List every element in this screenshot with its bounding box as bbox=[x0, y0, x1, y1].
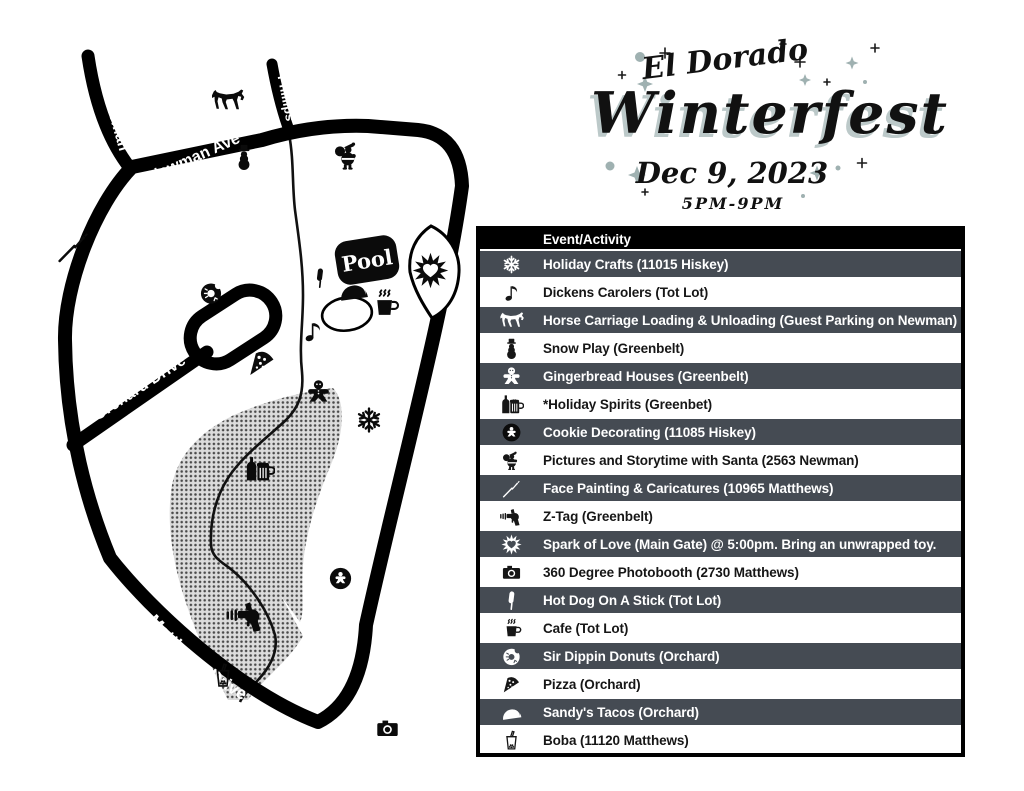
donut-icon bbox=[480, 646, 543, 667]
spirits-icon bbox=[480, 394, 543, 415]
snowman-icon bbox=[480, 338, 543, 359]
corndog-icon bbox=[317, 268, 324, 287]
event-row: Pictures and Storytime with Santa (2563 … bbox=[480, 447, 961, 473]
pool-marker: Pool bbox=[333, 233, 401, 286]
event-time: 5PM-9PM bbox=[682, 194, 784, 213]
boba-icon bbox=[480, 730, 543, 751]
event-label: Sandy's Tacos (Orchard) bbox=[543, 705, 699, 720]
event-label: Boba (11120 Matthews) bbox=[543, 733, 689, 748]
cookie-icon bbox=[480, 422, 543, 443]
pizza-icon bbox=[250, 352, 273, 375]
event-label: Cafe (Tot Lot) bbox=[543, 621, 628, 636]
corndog-icon bbox=[480, 590, 543, 611]
event-label: Pictures and Storytime with Santa (2563 … bbox=[543, 453, 859, 468]
coffee-icon bbox=[480, 618, 543, 639]
street-label-orchard: Orchard Drive bbox=[90, 352, 189, 424]
event-label: Gingerbread Houses (Greenbelt) bbox=[543, 369, 749, 384]
event-row: 360 Degree Photobooth (2730 Matthews) bbox=[480, 559, 961, 585]
santa-icon bbox=[335, 142, 356, 169]
event-label: Pizza (Orchard) bbox=[543, 677, 641, 692]
event-row: Boba (11120 Matthews) bbox=[480, 727, 961, 753]
event-row: Horse Carriage Loading & Unloading (Gues… bbox=[480, 307, 961, 333]
gingerbread-icon bbox=[480, 366, 543, 387]
event-row: Snow Play (Greenbelt) bbox=[480, 335, 961, 361]
event-label: 360 Degree Photobooth (2730 Matthews) bbox=[543, 565, 799, 580]
paintbrush-icon bbox=[480, 478, 543, 499]
cookie-icon bbox=[330, 568, 351, 589]
event-row: Cafe (Tot Lot) bbox=[480, 615, 961, 641]
music-note-icon bbox=[480, 282, 543, 303]
santa-icon bbox=[480, 450, 543, 471]
winterfest-flyer: Osterman Newman Ave Phillips Orchard Dri… bbox=[0, 0, 1024, 791]
coffee-icon bbox=[377, 290, 398, 315]
raygun-icon bbox=[480, 506, 543, 527]
event-label: Hot Dog On A Stick (Tot Lot) bbox=[543, 593, 721, 608]
events-table: Event/Activity Holiday Crafts (11015 His… bbox=[476, 226, 965, 757]
event-label: Z-Tag (Greenbelt) bbox=[543, 509, 653, 524]
event-row: Hot Dog On A Stick (Tot Lot) bbox=[480, 587, 961, 613]
event-label: Cookie Decorating (11085 Hiskey) bbox=[543, 425, 756, 440]
event-row: Sir Dippin Donuts (Orchard) bbox=[480, 643, 961, 669]
snowflake-icon bbox=[480, 254, 543, 275]
event-label: *Holiday Spirits (Greenbet) bbox=[543, 397, 712, 412]
event-label: Face Painting & Caricatures (10965 Matth… bbox=[543, 481, 833, 496]
event-date: Dec 9, 2023 bbox=[636, 156, 828, 190]
event-row: Spark of Love (Main Gate) @ 5:00pm. Brin… bbox=[480, 531, 961, 557]
event-label: Holiday Crafts (11015 Hiskey) bbox=[543, 257, 728, 272]
events-header-label: Event/Activity bbox=[543, 232, 631, 247]
event-title: Winterfest bbox=[591, 80, 949, 147]
event-row: Face Painting & Caricatures (10965 Matth… bbox=[480, 475, 961, 501]
event-label: Spark of Love (Main Gate) @ 5:00pm. Brin… bbox=[543, 537, 936, 552]
taco-icon bbox=[480, 702, 543, 723]
events-table-header: Event/Activity bbox=[480, 230, 961, 249]
event-row: Dickens Carolers (Tot Lot) bbox=[480, 279, 961, 305]
camera-icon bbox=[480, 562, 543, 583]
event-row: Pizza (Orchard) bbox=[480, 671, 961, 697]
horse-icon bbox=[480, 310, 543, 330]
event-row: Holiday Crafts (11015 Hiskey) bbox=[480, 251, 961, 277]
snowflake-icon bbox=[357, 409, 380, 432]
spark-icon bbox=[480, 534, 543, 555]
neighborhood-map: Osterman Newman Ave Phillips Orchard Dri… bbox=[0, 0, 480, 791]
event-location-title: El Dorado bbox=[640, 32, 810, 87]
horse-icon bbox=[212, 90, 244, 110]
tot-lot-oval bbox=[320, 294, 374, 334]
pizza-icon bbox=[480, 674, 543, 695]
event-row: Z-Tag (Greenbelt) bbox=[480, 503, 961, 529]
event-label: Snow Play (Greenbelt) bbox=[543, 341, 684, 356]
event-row: Cookie Decorating (11085 Hiskey) bbox=[480, 419, 961, 445]
camera-icon bbox=[377, 721, 397, 736]
title-block: El Dorado Winterfest Dec 9, 2023 5PM-9PM bbox=[540, 28, 1000, 228]
music-note-icon bbox=[305, 323, 320, 342]
event-label: Horse Carriage Loading & Unloading (Gues… bbox=[543, 313, 957, 328]
event-label: Sir Dippin Donuts (Orchard) bbox=[543, 649, 720, 664]
taco-icon bbox=[339, 284, 368, 301]
event-row: Gingerbread Houses (Greenbelt) bbox=[480, 363, 961, 389]
event-row: Sandy's Tacos (Orchard) bbox=[480, 699, 961, 725]
event-row: *Holiday Spirits (Greenbet) bbox=[480, 391, 961, 417]
event-label: Dickens Carolers (Tot Lot) bbox=[543, 285, 708, 300]
